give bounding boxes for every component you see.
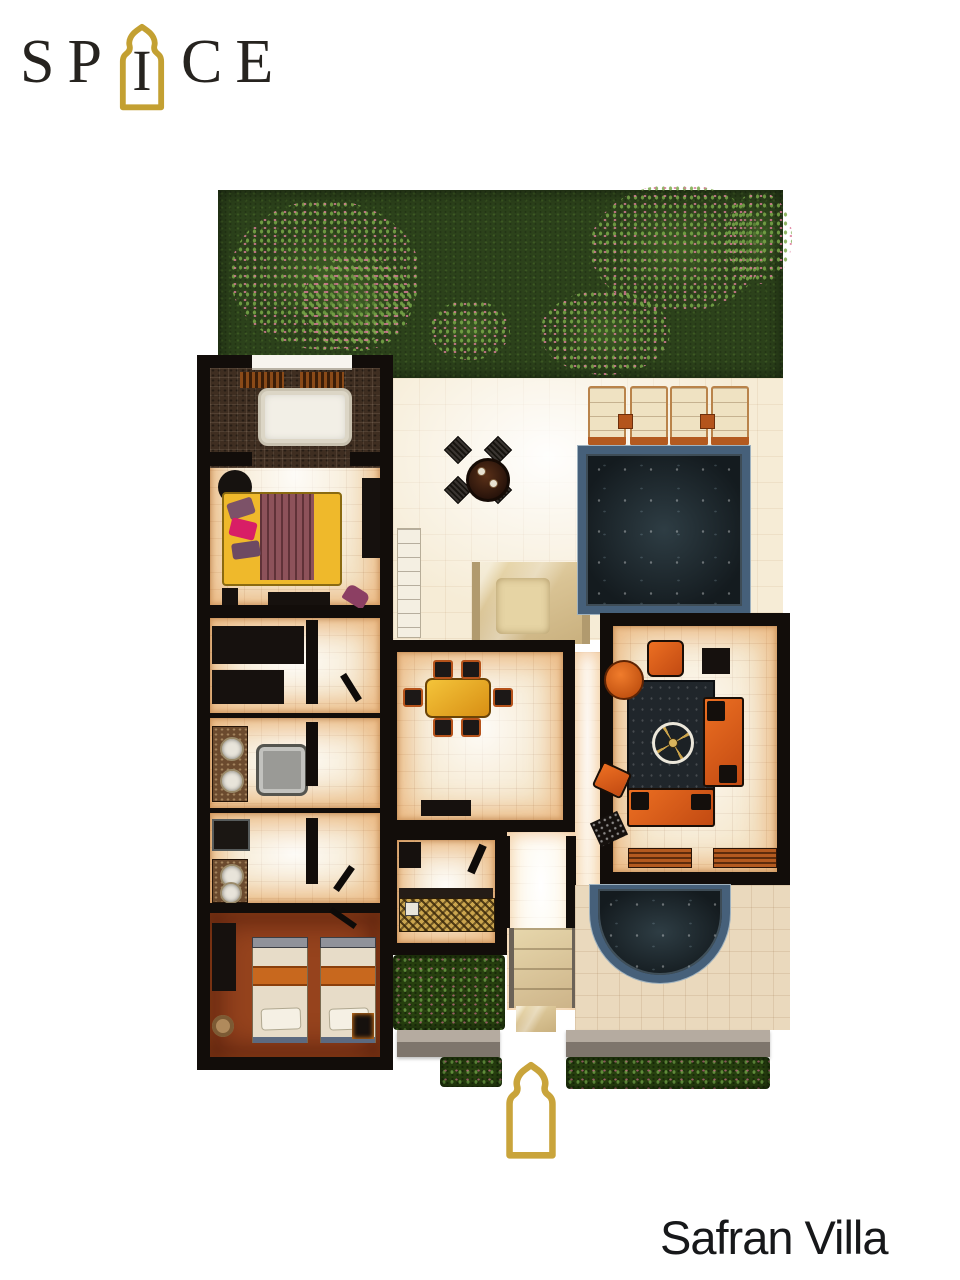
lounger-side-table [700,414,715,429]
kitchen-counter [399,888,493,898]
plate [489,479,498,488]
curtain [300,372,344,388]
flower-vines [430,300,510,360]
swimming-pool [578,446,750,614]
foyer-wall [500,836,510,928]
wall-stub [210,452,252,466]
sofa-cushion [631,792,649,810]
sun-lounger [711,386,749,446]
shower [212,819,250,851]
bathtub [256,744,308,796]
door-leaf [329,907,357,929]
vanity [212,859,248,903]
bed-blanket [260,494,314,580]
bed-base [253,1037,307,1043]
page-canvas: SP I CE [0,0,960,1280]
sideboard [421,800,471,816]
pillow [231,540,261,560]
marble-daybed [472,562,590,644]
lantern [352,1013,374,1039]
double-bed [222,492,342,586]
villa-name: Safran Villa [660,1210,888,1265]
curtain [240,372,284,388]
vanity-chair [341,583,370,610]
dining-chair [403,688,423,707]
entrance-step-pad [516,1006,556,1032]
fridge [399,842,421,868]
headboard [320,937,376,948]
dining-chair [433,718,453,737]
sofa-cushion [707,701,725,721]
wardrobe [362,478,380,558]
bathtub [258,388,352,446]
sofa-cushion [691,794,711,810]
garden-lawn [218,190,783,378]
kitchen [385,828,507,955]
dressing-room [197,608,393,718]
armchair [647,640,684,677]
deck-slats [713,848,777,868]
plate [477,467,486,476]
sink [220,882,242,904]
vanity [212,726,248,802]
floor-plan [0,0,960,1280]
door-leaf [333,865,355,892]
pillow [228,517,258,541]
twin-bed [252,941,308,1043]
bathroom-2 [197,808,393,908]
dining-table [425,678,491,718]
living-room [600,613,790,885]
dining-chair [461,718,481,737]
entrance-arch-icon [503,1062,559,1160]
window [252,355,352,370]
door-leaf [467,844,487,875]
dining-room [385,640,575,832]
sofa [627,788,715,827]
lounger-side-table [618,414,633,429]
side-table [702,648,730,674]
sink [220,769,244,793]
headboard [252,937,308,948]
wardrobe [212,670,284,704]
deck-slats [628,848,692,868]
floor-speaker [222,588,238,605]
daybed-cushion [496,578,550,634]
corridor-wall [306,818,318,884]
greenery-patch [393,955,505,1030]
bed-bench [268,592,330,605]
master-suite [197,355,393,618]
bed-runner [321,966,375,986]
sofa [703,697,744,787]
greenery-strip [440,1057,502,1087]
sun-lounger [630,386,668,446]
patio-table [466,458,510,502]
sofa-cushion [719,765,737,783]
round-ottoman [604,660,644,700]
patio-bench [397,528,421,638]
twin-bedroom [197,903,393,1070]
door-leaf [340,673,362,702]
entrance-steps [509,928,577,1008]
greenery-strip [566,1057,770,1089]
dining-chair [433,660,453,679]
bathroom-1 [197,713,393,813]
flower-vines [540,290,670,375]
planter-wall [566,1030,770,1057]
corridor-wall [306,722,318,786]
dining-chair [493,688,513,707]
pillow [226,496,256,520]
bed-runner [253,966,307,986]
moorish-arch-outline [503,1062,559,1159]
wardrobe [212,923,236,991]
basket [212,1015,234,1037]
corridor-wall [306,620,318,704]
dining-chair [461,660,481,679]
pillow [261,1007,302,1030]
ceiling-fan [652,722,694,764]
sink [220,737,244,761]
planter-wall [397,1030,500,1057]
wall-stub [350,452,380,466]
stove [405,902,419,916]
flower-vines [302,256,412,351]
flower-vines [726,192,792,284]
wardrobe [212,626,304,664]
